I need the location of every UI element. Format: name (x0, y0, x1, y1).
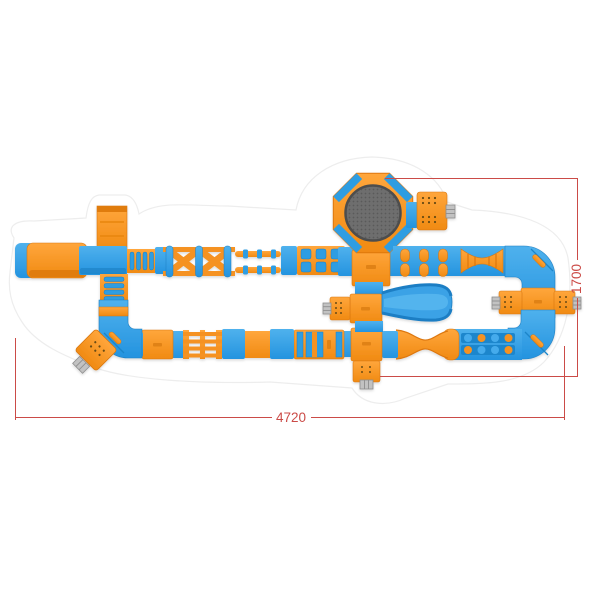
ladder-icon (446, 205, 455, 218)
exit-platform (353, 361, 380, 389)
ladder-walkway-vertical (100, 274, 128, 302)
flat-ladder-beams (183, 330, 222, 359)
ladder-icon (492, 297, 500, 309)
connector (270, 329, 294, 359)
trampoline-mesh (346, 186, 401, 241)
water-slide (382, 285, 452, 320)
entry-platform-top (406, 192, 455, 230)
connector (355, 321, 383, 332)
overhead-walkway (97, 206, 127, 252)
junction-middle (350, 294, 382, 323)
x-crisscross-obstacle (163, 246, 235, 277)
octagon-trampoline (333, 173, 412, 252)
dimension-label-width: 4720 (276, 410, 306, 425)
mini-entry-platform (323, 297, 350, 320)
bottom-left-platform (142, 330, 173, 359)
junction-central-bottom (343, 328, 382, 361)
balance-beams (235, 250, 281, 275)
start-platform (15, 243, 87, 278)
ladder-icon (323, 303, 331, 314)
rung-walkway (127, 249, 155, 273)
connector (222, 329, 245, 359)
hourglass-walkway (396, 330, 448, 359)
walls-obstacle (294, 330, 344, 359)
ladder-icon (360, 380, 373, 389)
dimension-label-height: 1700 (569, 264, 584, 294)
stepping-grid (297, 246, 345, 275)
water-park-plan-canvas: 4720 1700 (0, 0, 600, 600)
water-park-plan: 4720 1700 (0, 0, 600, 600)
roller-obstacle (455, 246, 509, 276)
stepping-stones (443, 329, 522, 360)
connector (173, 331, 183, 358)
walkway-segment (245, 331, 270, 358)
junction-top-left (79, 246, 127, 275)
connector (382, 331, 398, 358)
connector (281, 246, 297, 275)
dumbbell-obstacles (393, 246, 455, 277)
